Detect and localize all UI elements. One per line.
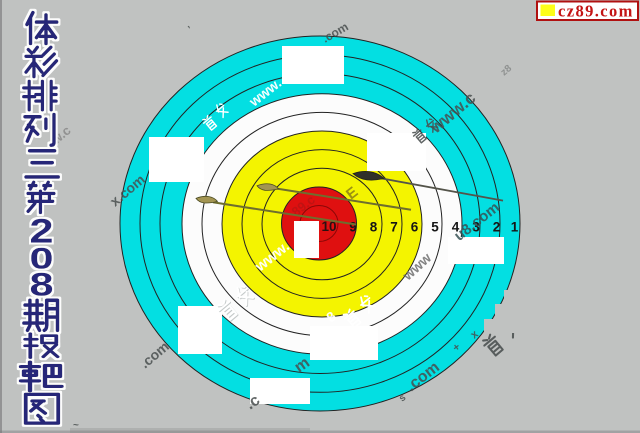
svg-text:8: 8: [30, 267, 54, 303]
svg-text:6: 6: [411, 220, 419, 235]
svg-text:5: 5: [431, 220, 439, 235]
svg-text:z8: z8: [499, 63, 514, 78]
svg-text:1: 1: [511, 220, 519, 235]
svg-text:9: 9: [349, 220, 357, 235]
svg-text:cz89.com: cz89.com: [558, 2, 634, 21]
svg-text:2: 2: [493, 220, 501, 235]
svg-text:7: 7: [390, 220, 398, 235]
svg-text:8: 8: [370, 220, 378, 235]
svg-text:,: ,: [183, 20, 191, 29]
